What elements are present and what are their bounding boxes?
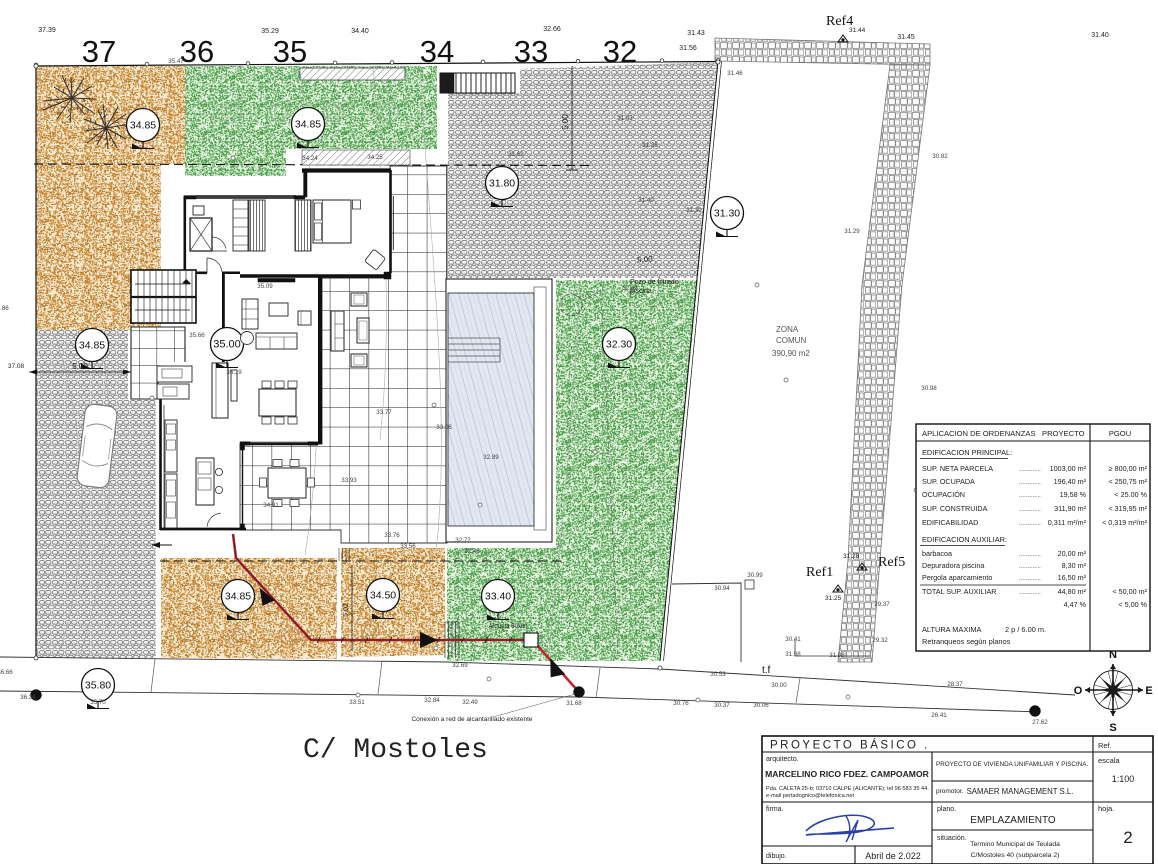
svg-text:APLICACION DE ORDENANZAS: APLICACION DE ORDENANZAS <box>922 429 1036 438</box>
svg-text:< 0,319 m²/m²: < 0,319 m²/m² <box>1102 518 1148 527</box>
svg-text:31.56: 31.56 <box>679 45 697 52</box>
svg-text:SUP. OCUPADA: SUP. OCUPADA <box>922 477 975 486</box>
svg-text:30.94: 30.94 <box>714 585 730 592</box>
svg-text:33.96: 33.96 <box>436 424 452 431</box>
svg-text:1003,00 m²: 1003,00 m² <box>1050 464 1087 473</box>
svg-text:30.99: 30.99 <box>747 572 763 579</box>
svg-text:33.51: 33.51 <box>349 699 365 706</box>
svg-text:barbacoa: barbacoa <box>922 549 952 558</box>
svg-text:33.77: 33.77 <box>376 409 392 416</box>
svg-text:31.44: 31.44 <box>849 27 866 34</box>
svg-text:.............: ............. <box>1019 564 1041 570</box>
svg-text:.............: ............. <box>1019 467 1041 473</box>
svg-text:35.86: 35.86 <box>0 305 9 312</box>
svg-text:.............: ............. <box>1019 507 1041 513</box>
svg-text:.............: ............. <box>1019 493 1041 499</box>
svg-text:MARCELINO RICO FDEZ. CAMPOAMOR: MARCELINO RICO FDEZ. CAMPOAMOR <box>765 769 930 779</box>
svg-text:5.00: 5.00 <box>72 362 88 371</box>
svg-text:5.02: 5.02 <box>343 603 350 617</box>
svg-text:34.85: 34.85 <box>79 340 105 352</box>
svg-text:EDIFICABILIDAD: EDIFICABILIDAD <box>922 518 978 527</box>
svg-text:8,30 m²: 8,30 m² <box>1062 561 1087 570</box>
svg-text:31.30: 31.30 <box>714 208 740 220</box>
svg-text:34.24: 34.24 <box>302 155 318 162</box>
svg-text:situación.: situación. <box>937 835 967 842</box>
svg-text:PROYECTO: PROYECTO <box>1042 429 1085 438</box>
svg-text:< 50,00 m²: < 50,00 m² <box>1112 587 1147 596</box>
svg-text:27.62: 27.62 <box>1032 719 1048 726</box>
svg-text:< 250,75 m²: < 250,75 m² <box>1108 477 1147 486</box>
svg-text:33.40: 33.40 <box>485 591 511 603</box>
svg-text:31.46: 31.46 <box>727 70 743 77</box>
svg-text:31.68: 31.68 <box>566 700 582 707</box>
svg-text:Termino Municipal de Teulada: Termino Municipal de Teulada <box>970 841 1060 848</box>
svg-text:31.03: 31.03 <box>617 115 633 122</box>
svg-text:34.50: 34.50 <box>370 590 396 602</box>
svg-text:C/Mostoles 40 (subparcela 2): C/Mostoles 40 (subparcela 2) <box>971 852 1060 859</box>
svg-text:S: S <box>1109 722 1116 734</box>
svg-text:0,311 m²/m²: 0,311 m²/m² <box>1048 518 1087 527</box>
svg-text:31.28: 31.28 <box>642 142 658 149</box>
svg-text:19,58 %: 19,58 % <box>1060 490 1087 499</box>
svg-text:36.34: 36.34 <box>20 694 36 701</box>
svg-text:32.72: 32.72 <box>455 537 471 544</box>
svg-text:.............: ............. <box>1019 480 1041 486</box>
svg-text:32.47: 32.47 <box>622 285 638 292</box>
svg-text:hoja.: hoja. <box>1098 804 1114 813</box>
svg-text:390,90 m2: 390,90 m2 <box>772 349 810 358</box>
svg-text:31.62: 31.62 <box>508 151 524 158</box>
svg-text:35.66: 35.66 <box>189 332 205 339</box>
svg-text:31.40: 31.40 <box>1091 32 1109 39</box>
svg-text:firma.: firma. <box>766 806 784 813</box>
svg-text:Ref5: Ref5 <box>878 555 905 570</box>
svg-text:32.89: 32.89 <box>483 454 499 461</box>
svg-text:31.08: 31.08 <box>785 651 801 658</box>
svg-text:44,80 m²: 44,80 m² <box>1058 587 1087 596</box>
svg-text:dibujo.: dibujo. <box>766 853 787 860</box>
svg-text:35: 35 <box>273 34 307 69</box>
svg-text:EDIFICACION PRINCIPAL:: EDIFICACION PRINCIPAL: <box>922 448 1012 457</box>
svg-text:36.66: 36.66 <box>0 669 13 676</box>
svg-text:29.32: 29.32 <box>872 637 888 644</box>
svg-text:35.00: 35.00 <box>213 339 241 351</box>
svg-text:33.93: 33.93 <box>341 477 357 484</box>
svg-text:35.80: 35.80 <box>85 680 111 692</box>
svg-text:30.06: 30.06 <box>753 702 769 709</box>
svg-text:35.70: 35.70 <box>90 699 106 706</box>
svg-text:2 p / 6.00 m.: 2 p / 6.00 m. <box>1005 625 1046 634</box>
svg-text:26.41: 26.41 <box>931 712 947 719</box>
svg-text:E: E <box>1145 685 1152 697</box>
svg-text:31.40: 31.40 <box>638 197 654 204</box>
svg-text:31.29: 31.29 <box>844 228 860 235</box>
svg-text:33: 33 <box>514 34 548 69</box>
svg-text:31.80: 31.80 <box>489 178 515 190</box>
svg-text:ZONA: ZONA <box>776 325 799 334</box>
svg-text:4,47 %: 4,47 % <box>1064 600 1087 609</box>
svg-text:32.48: 32.48 <box>464 548 480 555</box>
svg-text:37.39: 37.39 <box>38 27 56 34</box>
svg-text:31.30: 31.30 <box>686 207 702 214</box>
svg-text:5.00: 5.00 <box>637 254 654 264</box>
svg-text:Abril de 2.022: Abril de 2.022 <box>865 851 921 861</box>
svg-text:33.56: 33.56 <box>400 543 416 550</box>
svg-text:30.98: 30.98 <box>921 385 937 392</box>
svg-text:t.f: t.f <box>762 665 771 676</box>
svg-text:C/ Mostoles: C/ Mostoles <box>303 735 488 766</box>
svg-text:31.45: 31.45 <box>897 34 915 41</box>
svg-text:Depuradora piscina: Depuradora piscina <box>922 561 984 570</box>
svg-text:30.41: 30.41 <box>785 636 801 643</box>
svg-text:SAMAER MANAGEMENT S.L.: SAMAER MANAGEMENT S.L. <box>967 787 1074 796</box>
svg-text:SUP. CONSTRUIDA: SUP. CONSTRUIDA <box>922 504 988 513</box>
svg-text:32.69: 32.69 <box>452 662 468 669</box>
svg-text:32: 32 <box>603 34 637 69</box>
svg-text:30.00: 30.00 <box>771 682 787 689</box>
svg-text:34.85: 34.85 <box>225 591 251 603</box>
svg-text:34: 34 <box>420 34 454 69</box>
svg-text:.............: ............. <box>1019 552 1041 558</box>
svg-text:311,90 m²: 311,90 m² <box>1054 504 1086 513</box>
svg-text:34.85: 34.85 <box>295 119 321 131</box>
svg-text:31.08: 31.08 <box>829 652 845 659</box>
svg-text:34.25: 34.25 <box>367 154 383 161</box>
svg-text:196,40 m²: 196,40 m² <box>1054 477 1087 486</box>
svg-text:34.40: 34.40 <box>351 28 369 35</box>
svg-text:37.08: 37.08 <box>8 363 25 370</box>
svg-text:.............: ............. <box>1019 521 1041 527</box>
svg-text:20,00 m²: 20,00 m² <box>1058 549 1087 558</box>
svg-text:Pda. CALETA 25-b; 03710 CALPE: Pda. CALETA 25-b; 03710 CALPE (ALICANTE)… <box>766 786 929 792</box>
svg-text:35.47: 35.47 <box>168 58 184 65</box>
svg-text:COMUN: COMUN <box>776 336 806 345</box>
svg-text:Arqueta 60x60: Arqueta 60x60 <box>488 624 528 630</box>
svg-text:31.28: 31.28 <box>843 553 860 560</box>
svg-text:32.30: 32.30 <box>606 339 632 351</box>
svg-text:.............: ............. <box>1019 590 1041 596</box>
svg-text:Ref1: Ref1 <box>806 565 833 580</box>
svg-text:2: 2 <box>1123 828 1132 847</box>
svg-text:31.43: 31.43 <box>687 30 705 37</box>
svg-text:EMPLAZAMIENTO: EMPLAZAMIENTO <box>970 815 1056 826</box>
svg-text:34.91: 34.91 <box>263 502 279 509</box>
svg-text:PROYECTO DE VIVIENDA UNIFAMILI: PROYECTO DE VIVIENDA UNIFAMILIAR Y PISCI… <box>936 761 1088 768</box>
svg-text:35.09: 35.09 <box>257 283 273 290</box>
svg-text:37: 37 <box>82 34 116 69</box>
svg-text:.............: ............. <box>1019 576 1041 582</box>
svg-text:OCUPACIÓN: OCUPACIÓN <box>922 490 965 499</box>
svg-text:32.49: 32.49 <box>462 699 478 706</box>
svg-text:TOTAL SUP. AUXILIAR: TOTAL SUP. AUXILIAR <box>922 587 996 596</box>
svg-text:Retranqueos según planos: Retranqueos según planos <box>922 637 1011 646</box>
svg-text:escala: escala <box>1098 756 1121 765</box>
svg-text:plano.: plano. <box>937 806 956 813</box>
svg-text:35.29: 35.29 <box>261 28 279 35</box>
svg-text:30.37: 30.37 <box>714 702 730 709</box>
svg-text:ALTURA MAXIMA: ALTURA MAXIMA <box>922 625 981 634</box>
svg-text:O: O <box>1074 685 1083 697</box>
svg-text:30.76: 30.76 <box>673 700 689 707</box>
svg-text:31.25: 31.25 <box>825 595 842 602</box>
svg-text:Pergola aparcamiento: Pergola aparcamiento <box>922 573 992 582</box>
svg-text:PGOU: PGOU <box>1109 429 1131 438</box>
svg-text:< 319,95 m²: < 319,95 m² <box>1108 504 1147 513</box>
svg-text:16,50 m²: 16,50 m² <box>1058 573 1087 582</box>
svg-text:29.37: 29.37 <box>874 601 890 608</box>
svg-text:SUP. NETA PARCELA: SUP. NETA PARCELA <box>922 464 993 473</box>
svg-text:1:100: 1:100 <box>1112 774 1135 784</box>
svg-text:EDIFICACION AUXILIAR:: EDIFICACION AUXILIAR: <box>922 535 1007 544</box>
svg-text:35.19: 35.19 <box>226 369 242 376</box>
svg-text:5.00: 5.00 <box>561 114 570 130</box>
svg-text:Conexión a red de alcantarilla: Conexión a red de alcantarillado existen… <box>411 716 532 723</box>
svg-text:Ref.: Ref. <box>1098 741 1112 750</box>
svg-text:< 25.00 %: < 25.00 % <box>1114 490 1147 499</box>
svg-text:PROYECTO BÁSICO .: PROYECTO BÁSICO . <box>770 739 930 752</box>
svg-text:32.66: 32.66 <box>543 26 561 33</box>
svg-text:30.53: 30.53 <box>710 671 726 678</box>
svg-text:36: 36 <box>180 34 214 69</box>
svg-text:e-mail pertadognico@telefonic: e-mail pertadognico@telefonica.net <box>766 793 855 799</box>
svg-text:28.37: 28.37 <box>947 681 963 688</box>
svg-text:32.84: 32.84 <box>424 697 440 704</box>
svg-text:arquitecto.: arquitecto. <box>766 756 799 763</box>
svg-text:≥ 800,00 m²: ≥ 800,00 m² <box>1109 464 1148 473</box>
svg-text:33.76: 33.76 <box>384 532 400 539</box>
svg-text:promotor.: promotor. <box>936 788 964 795</box>
svg-text:30.82: 30.82 <box>932 153 948 160</box>
svg-text:N: N <box>1109 649 1117 661</box>
svg-text:< 5,00 %: < 5,00 % <box>1118 600 1147 609</box>
svg-text:34.85: 34.85 <box>130 120 156 132</box>
